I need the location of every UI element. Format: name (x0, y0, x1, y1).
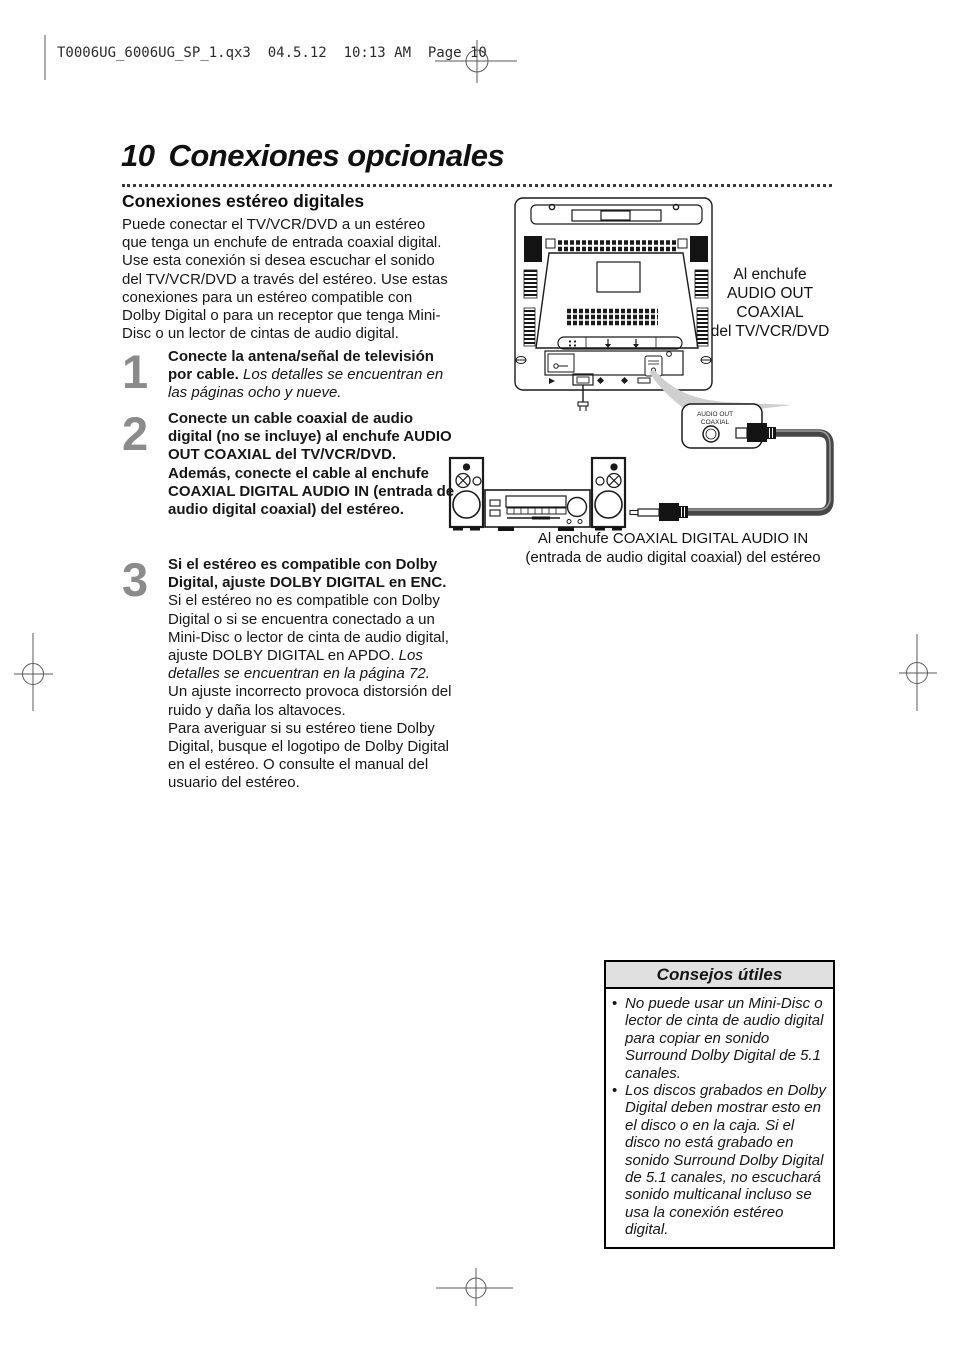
tv-callout-label: Al enchufe AUDIO OUT COAXIAL del TV/VCR/… (703, 265, 837, 341)
tips-box: Consejos útiles • No puede usar un Mini-… (604, 960, 835, 1249)
print-header: T0006UG_6006UG_SP_1.qx3 04.5.12 10:13 AM… (57, 45, 487, 61)
bullet-icon: • (612, 995, 625, 1082)
tv-callout-line: del TV/VCR/DVD (703, 322, 837, 341)
step-text: Conecte la antena/señal de televisión po… (168, 348, 458, 403)
step-number: 2 (122, 412, 148, 456)
step-item-3: 3 Si el estéreo es compatible con Dolby … (122, 556, 458, 793)
rca-plug-left-icon (630, 503, 688, 521)
tv-back-icon (515, 198, 712, 411)
step-text-bold: Si el estéreo es compatible con Dolby Di… (168, 556, 446, 591)
step-text-normal: Un ajuste incorrecto provoca distorsión … (168, 683, 458, 719)
dotted-rule (122, 168, 832, 187)
tip-item: • No puede usar un Mini-Disc o lector de… (612, 995, 827, 1082)
step-text: Si el estéreo es compatible con Dolby Di… (168, 556, 458, 793)
tv-callout-line: AUDIO OUT (703, 284, 837, 303)
step-number: 3 (122, 558, 148, 602)
stereo-icon (450, 458, 625, 531)
step-text: Conecte un cable coaxial de audio digita… (168, 410, 458, 519)
manual-page: T0006UG_6006UG_SP_1.qx3 04.5.12 10:13 AM… (0, 0, 954, 1351)
step-item-2: 2 Conecte un cable coaxial de audio digi… (122, 410, 458, 519)
audio-out-inset: AUDIO OUT COAXIAL (682, 404, 776, 448)
intro-paragraph: Puede conectar el TV/VCR/DVD a un estére… (122, 216, 454, 343)
tips-title: Consejos útiles (606, 962, 833, 989)
tip-text: No puede usar un Mini-Disc o lector de c… (625, 995, 827, 1082)
step-text-bold: Conecte un cable coaxial de audio digita… (168, 410, 458, 465)
connection-diagram: AUDIO OUT COAXIAL (440, 190, 852, 580)
section-heading: Conexiones estéreo digitales (122, 191, 364, 212)
step-item-1: 1 Conecte la antena/señal de televisión … (122, 348, 458, 403)
tv-callout-line: Al enchufe (703, 265, 837, 284)
stereo-caption-line: (entrada de audio digital coaxial) del e… (508, 548, 838, 567)
tip-item: • Los discos grabados en Dolby Digital d… (612, 1082, 827, 1239)
bullet-icon: • (612, 1082, 625, 1239)
stereo-caption: Al enchufe COAXIAL DIGITAL AUDIO IN (ent… (508, 529, 838, 567)
step-text-paragraph: Si el estéreo es compatible con Dolby Di… (168, 556, 458, 683)
tips-list: • No puede usar un Mini-Disc o lector de… (606, 989, 833, 1247)
stereo-caption-line: Al enchufe COAXIAL DIGITAL AUDIO IN (508, 529, 838, 548)
tv-callout-line: COAXIAL (703, 303, 837, 322)
step-text-normal: Para averiguar si su estéreo tiene Dolby… (168, 720, 458, 793)
jack-label-line2: COAXIAL (701, 419, 730, 426)
tip-text: Los discos grabados en Dolby Digital deb… (625, 1082, 827, 1239)
jack-label-line1: AUDIO OUT (697, 411, 733, 418)
step-text-bold: Además, conecte el cable al enchufe COAX… (168, 465, 458, 520)
step-number: 1 (122, 350, 148, 394)
